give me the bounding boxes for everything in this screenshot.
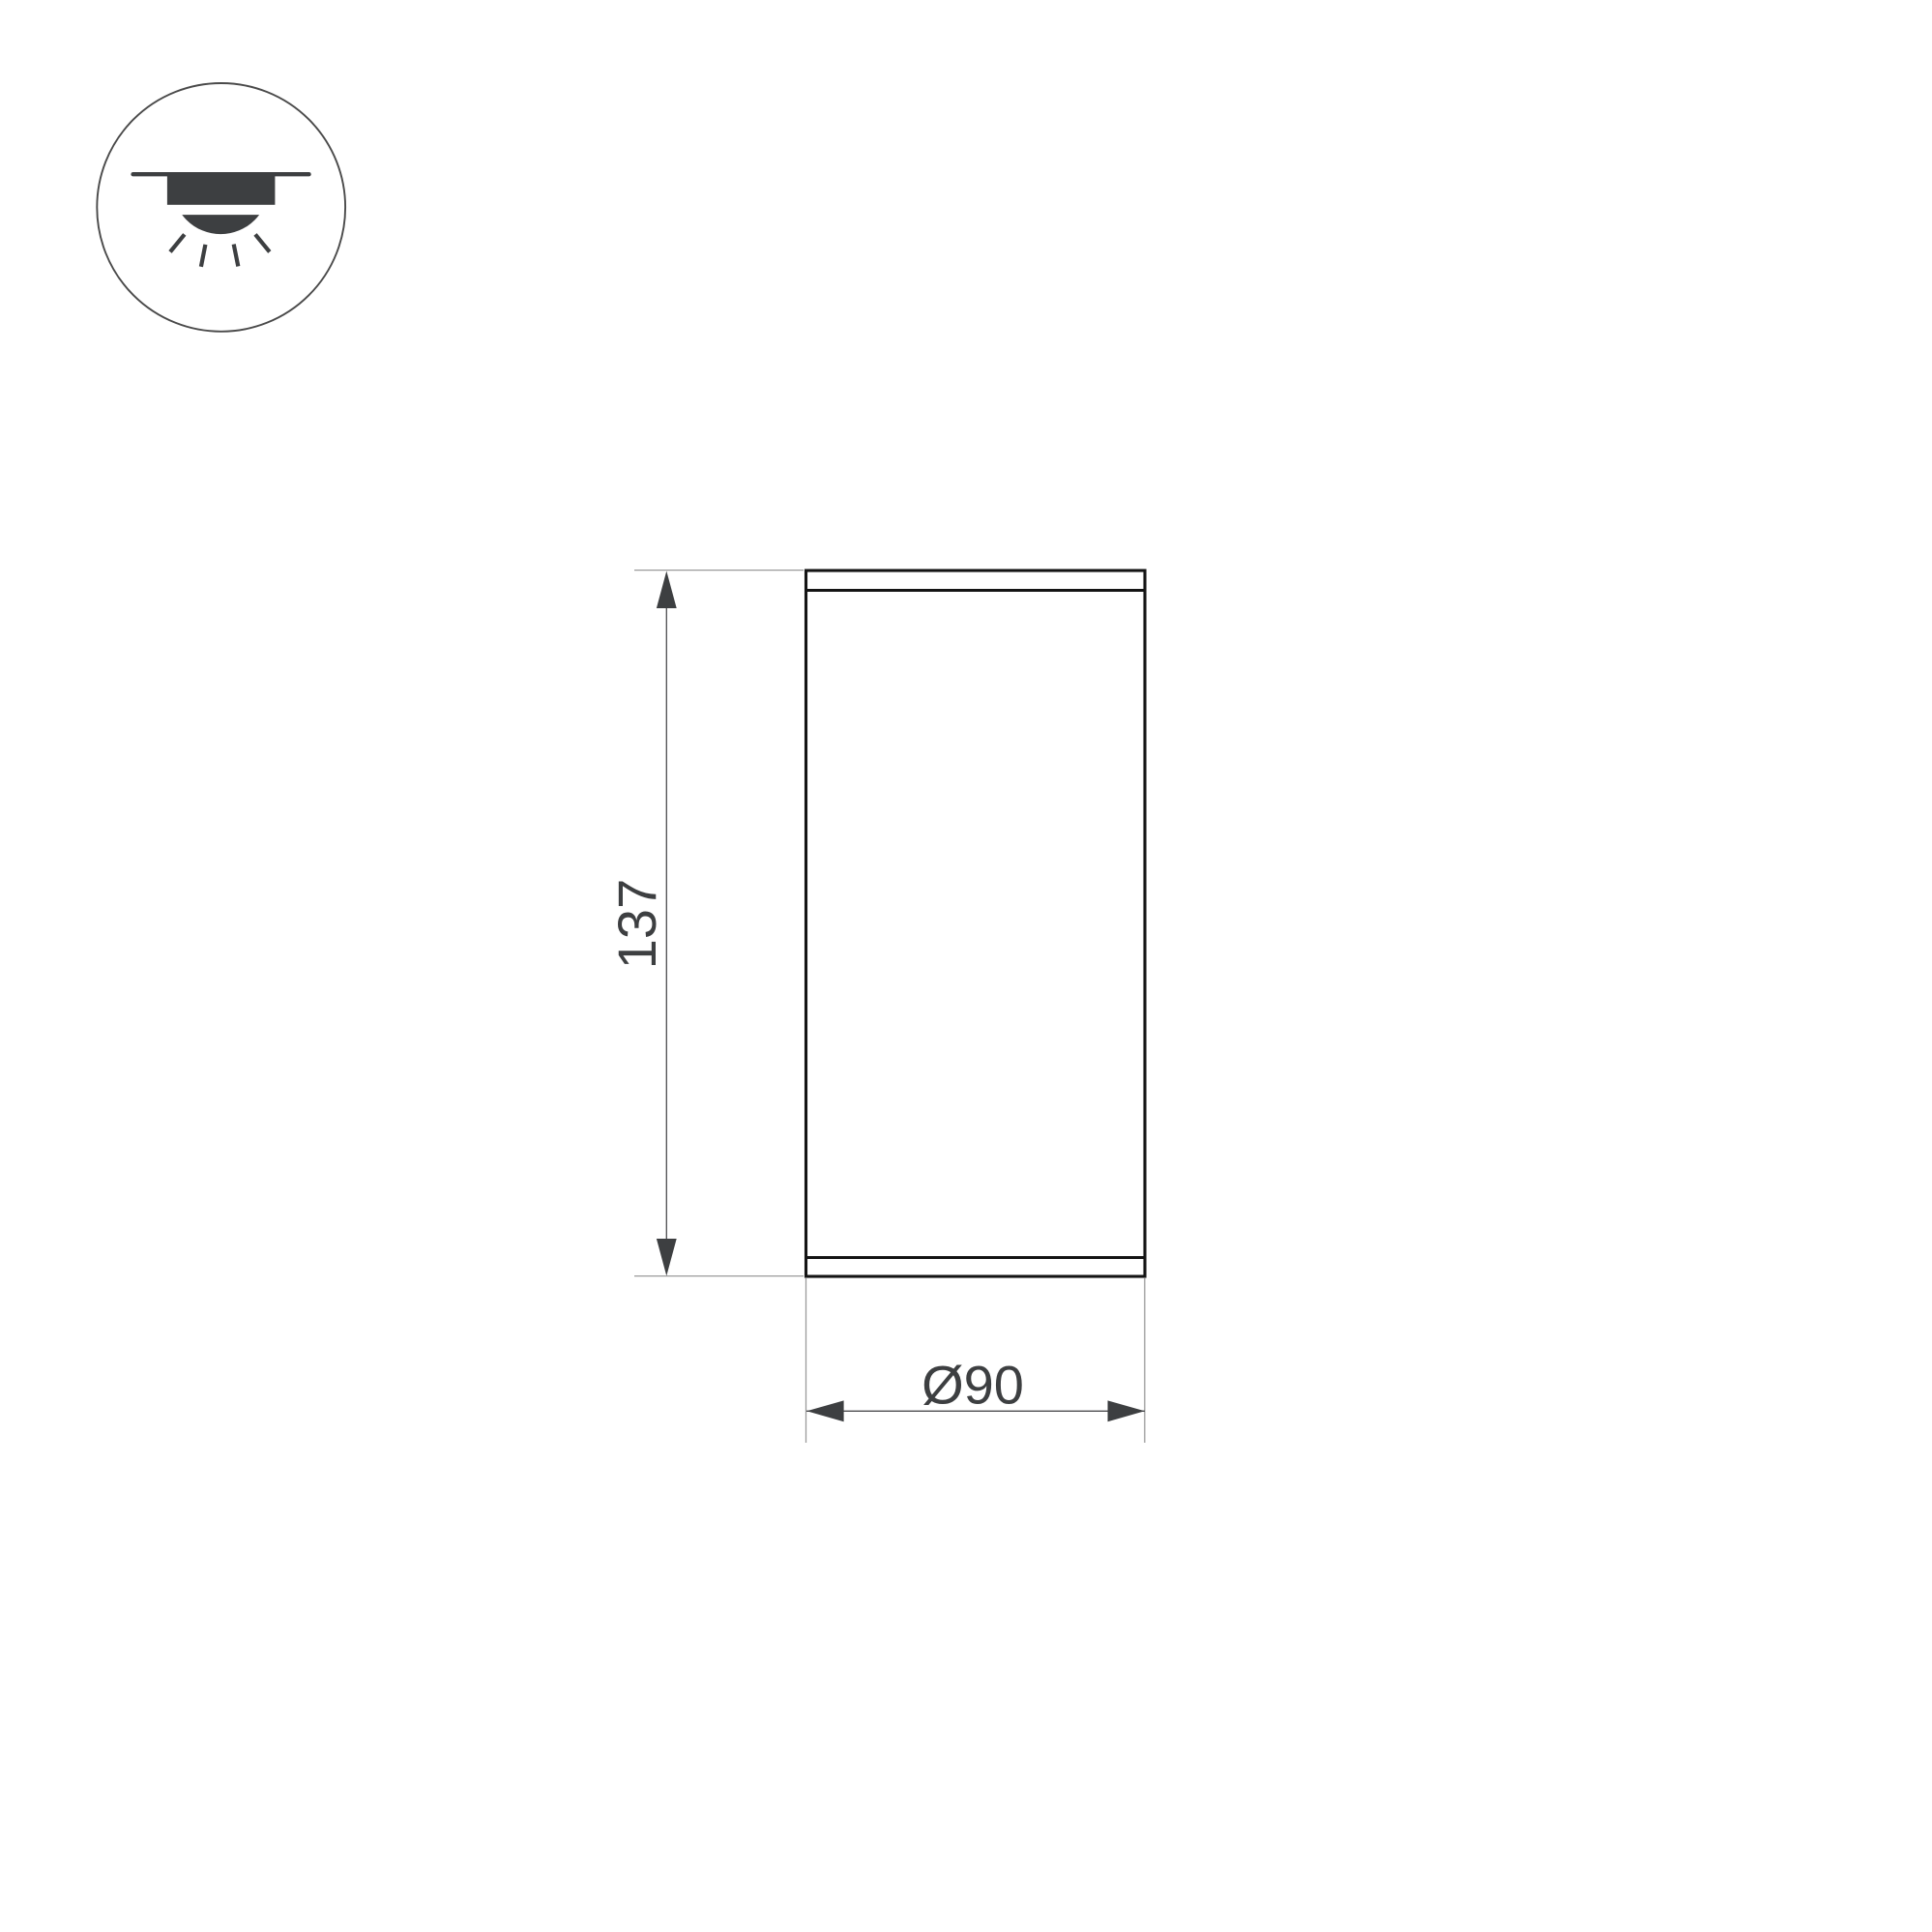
- svg-text:137: 137: [606, 879, 667, 969]
- svg-text:Ø90: Ø90: [922, 1355, 1024, 1416]
